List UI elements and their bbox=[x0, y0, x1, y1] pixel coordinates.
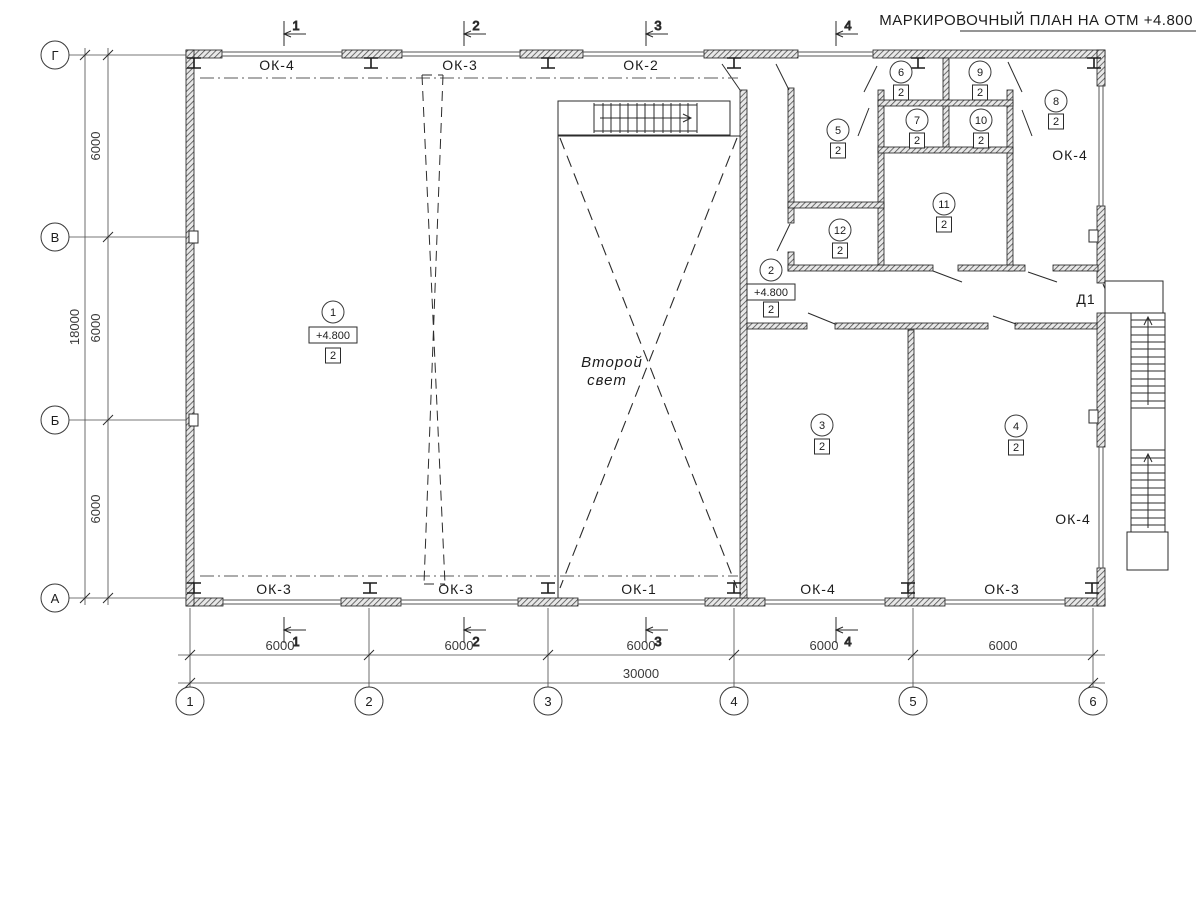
svg-text:11: 11 bbox=[938, 199, 949, 211]
axis-row-a: А bbox=[51, 591, 60, 606]
section-mark-1-top: 1 bbox=[292, 18, 299, 33]
axis-row-g: Г bbox=[51, 48, 58, 63]
room-6-mark: 6 2 bbox=[890, 61, 912, 100]
room-10-mark: 10 2 bbox=[970, 109, 992, 148]
second-light-label-line2: свет bbox=[587, 372, 627, 389]
svg-text:2: 2 bbox=[1053, 116, 1059, 128]
svg-text:8: 8 bbox=[1053, 96, 1059, 108]
room-11-mark: 11 2 bbox=[933, 193, 955, 232]
svg-text:2: 2 bbox=[977, 87, 983, 99]
dim-left-2: 6000 bbox=[88, 314, 103, 343]
window-mark-top-3: ОК-2 bbox=[623, 57, 659, 73]
svg-text:2: 2 bbox=[978, 135, 984, 147]
window-mark-right-top: ОК-4 bbox=[1052, 147, 1088, 163]
svg-text:9: 9 bbox=[977, 67, 983, 79]
svg-text:2: 2 bbox=[835, 145, 841, 157]
interior-stair bbox=[558, 101, 730, 135]
section-mark-3-top: 3 bbox=[654, 18, 661, 33]
svg-text:1: 1 bbox=[330, 307, 336, 319]
room-9-mark: 9 2 bbox=[969, 61, 991, 100]
section-mark-2-top: 2 bbox=[472, 18, 479, 33]
dim-left-1: 6000 bbox=[88, 132, 103, 161]
col-axis-bubbles: 1 2 3 4 5 6 bbox=[176, 687, 1107, 715]
axis-row-v: В bbox=[51, 230, 60, 245]
room-5-mark: 5 2 bbox=[827, 119, 849, 158]
axis-col-4: 4 bbox=[730, 694, 737, 709]
left-axis-dimensions: 6000 6000 6000 18000 Г В Б А bbox=[41, 41, 186, 612]
door-label: Д1 bbox=[1076, 291, 1095, 307]
section-marks-top: 1 2 3 4 bbox=[284, 18, 858, 46]
axis-col-2: 2 bbox=[365, 694, 372, 709]
svg-text:3: 3 bbox=[819, 420, 825, 432]
external-stair bbox=[1105, 281, 1168, 570]
window-mark-top-1: ОК-4 bbox=[259, 57, 295, 73]
svg-text:5: 5 bbox=[835, 125, 841, 137]
dim-left-3: 6000 bbox=[88, 495, 103, 524]
svg-text:+4.800: +4.800 bbox=[316, 330, 350, 342]
svg-text:7: 7 bbox=[914, 115, 920, 127]
window-mark-bottom-1: ОК-3 bbox=[256, 581, 292, 597]
window-mark-bottom-2: ОК-3 bbox=[438, 581, 474, 597]
svg-text:10: 10 bbox=[975, 115, 987, 127]
room-4-mark: 4 2 bbox=[1005, 415, 1027, 455]
dim-bottom-3: 6000 bbox=[627, 638, 656, 653]
axis-col-5: 5 bbox=[909, 694, 916, 709]
bottom-axis-dimensions: 6000 6000 6000 6000 6000 30000 1 2 3 4 5… bbox=[176, 608, 1107, 715]
dim-bottom-total: 30000 bbox=[623, 666, 659, 681]
svg-text:2: 2 bbox=[819, 441, 825, 453]
svg-text:2: 2 bbox=[941, 219, 947, 231]
room-1-mark: 1 +4.800 2 bbox=[309, 301, 357, 363]
second-light-void: Второй свет bbox=[558, 135, 740, 598]
svg-text:2: 2 bbox=[837, 245, 843, 257]
room-7-mark: 7 2 bbox=[906, 109, 928, 148]
window-mark-right-bottom: ОК-4 bbox=[1055, 511, 1091, 527]
room-3-mark: 3 2 bbox=[811, 414, 833, 454]
axis-col-1: 1 bbox=[186, 694, 193, 709]
svg-text:2: 2 bbox=[898, 87, 904, 99]
svg-text:2: 2 bbox=[1013, 442, 1019, 454]
window-mark-top-2: ОК-3 bbox=[442, 57, 478, 73]
dim-left-total: 18000 bbox=[67, 309, 82, 345]
section-mark-4-top: 4 bbox=[844, 18, 851, 33]
room-8-mark: 8 2 bbox=[1045, 90, 1067, 129]
row-axis-bubbles: Г В Б А bbox=[41, 41, 69, 612]
page-title: МАРКИРОВОЧНЫЙ ПЛАН НА ОТМ +4.800 bbox=[879, 11, 1193, 29]
window-mark-bottom-3: ОК-1 bbox=[621, 581, 657, 597]
window-mark-bottom-5: ОК-3 bbox=[984, 581, 1020, 597]
axis-col-6: 6 bbox=[1089, 694, 1096, 709]
room-12-mark: 12 2 bbox=[829, 219, 851, 258]
svg-text:2: 2 bbox=[330, 350, 336, 362]
svg-text:+4.800: +4.800 bbox=[754, 287, 788, 299]
dashed-brace-band bbox=[422, 75, 445, 584]
dim-bottom-2: 6000 bbox=[445, 638, 474, 653]
dim-bottom-4: 6000 bbox=[810, 638, 839, 653]
section-marks-bottom: 1 2 3 4 bbox=[284, 617, 858, 649]
svg-text:6: 6 bbox=[898, 67, 904, 79]
svg-text:4: 4 bbox=[1013, 421, 1019, 433]
dim-bottom-5: 6000 bbox=[989, 638, 1018, 653]
svg-text:2: 2 bbox=[768, 304, 774, 316]
section-mark-4-bottom: 4 bbox=[844, 634, 851, 649]
window-mark-bottom-4: ОК-4 bbox=[800, 581, 836, 597]
svg-text:12: 12 bbox=[834, 225, 846, 237]
svg-text:2: 2 bbox=[914, 135, 920, 147]
floor-plan-drawing: МАРКИРОВОЧНЫЙ ПЛАН НА ОТМ +4.800 bbox=[0, 0, 1200, 900]
axis-row-b: Б bbox=[51, 413, 60, 428]
svg-text:2: 2 bbox=[768, 265, 774, 277]
second-light-label-line1: Второй bbox=[581, 354, 643, 371]
axis-col-3: 3 bbox=[544, 694, 551, 709]
dim-bottom-1: 6000 bbox=[266, 638, 295, 653]
crane-axis-lines bbox=[200, 78, 738, 576]
drawing-title: МАРКИРОВОЧНЫЙ ПЛАН НА ОТМ +4.800 bbox=[879, 11, 1196, 31]
